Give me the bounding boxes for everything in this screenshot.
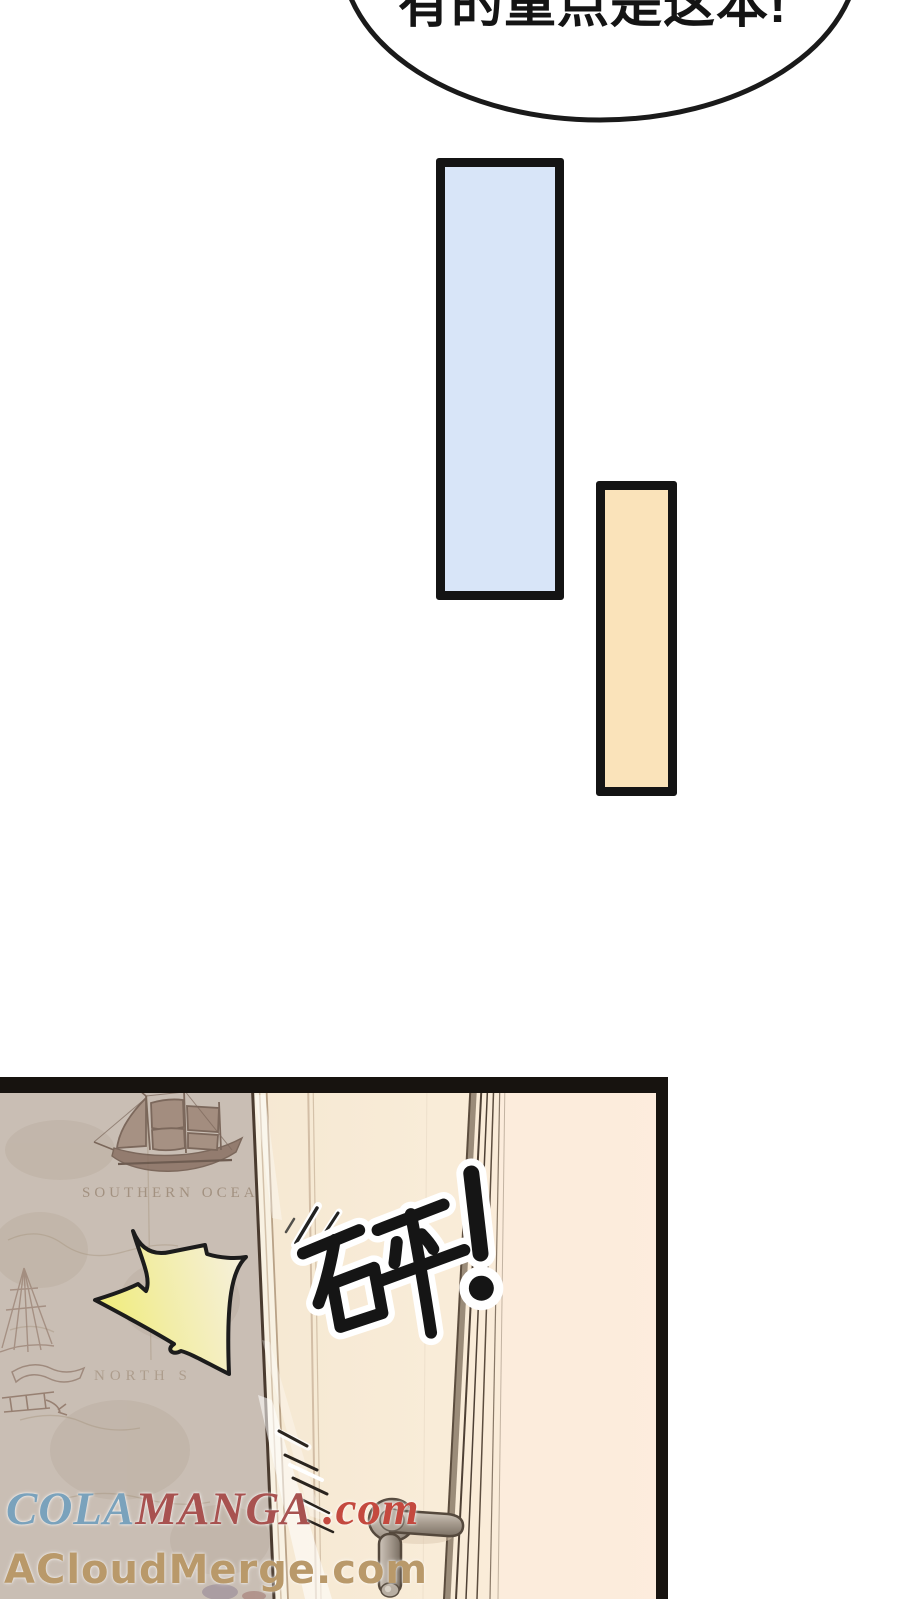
- comic-page: 有的重点是这本!: [0, 0, 900, 1599]
- map-wall-background: SOUTHERN OCEAN NORTH S: [0, 1077, 274, 1599]
- blue-color-bar: [436, 158, 564, 600]
- handle-hub: [380, 1509, 404, 1531]
- map-label-north: NORTH S: [94, 1368, 192, 1384]
- door-light-area: [500, 1077, 656, 1599]
- door-slam-panel: SOUTHERN OCEAN NORTH S: [0, 1077, 668, 1599]
- orange-color-bar: [596, 481, 677, 796]
- handle-grip-end-highlight: [385, 1586, 391, 1592]
- speech-bubble-text: 有的重点是这本!: [398, 0, 787, 37]
- map-label-southern-ocean: SOUTHERN OCEAN: [82, 1185, 273, 1201]
